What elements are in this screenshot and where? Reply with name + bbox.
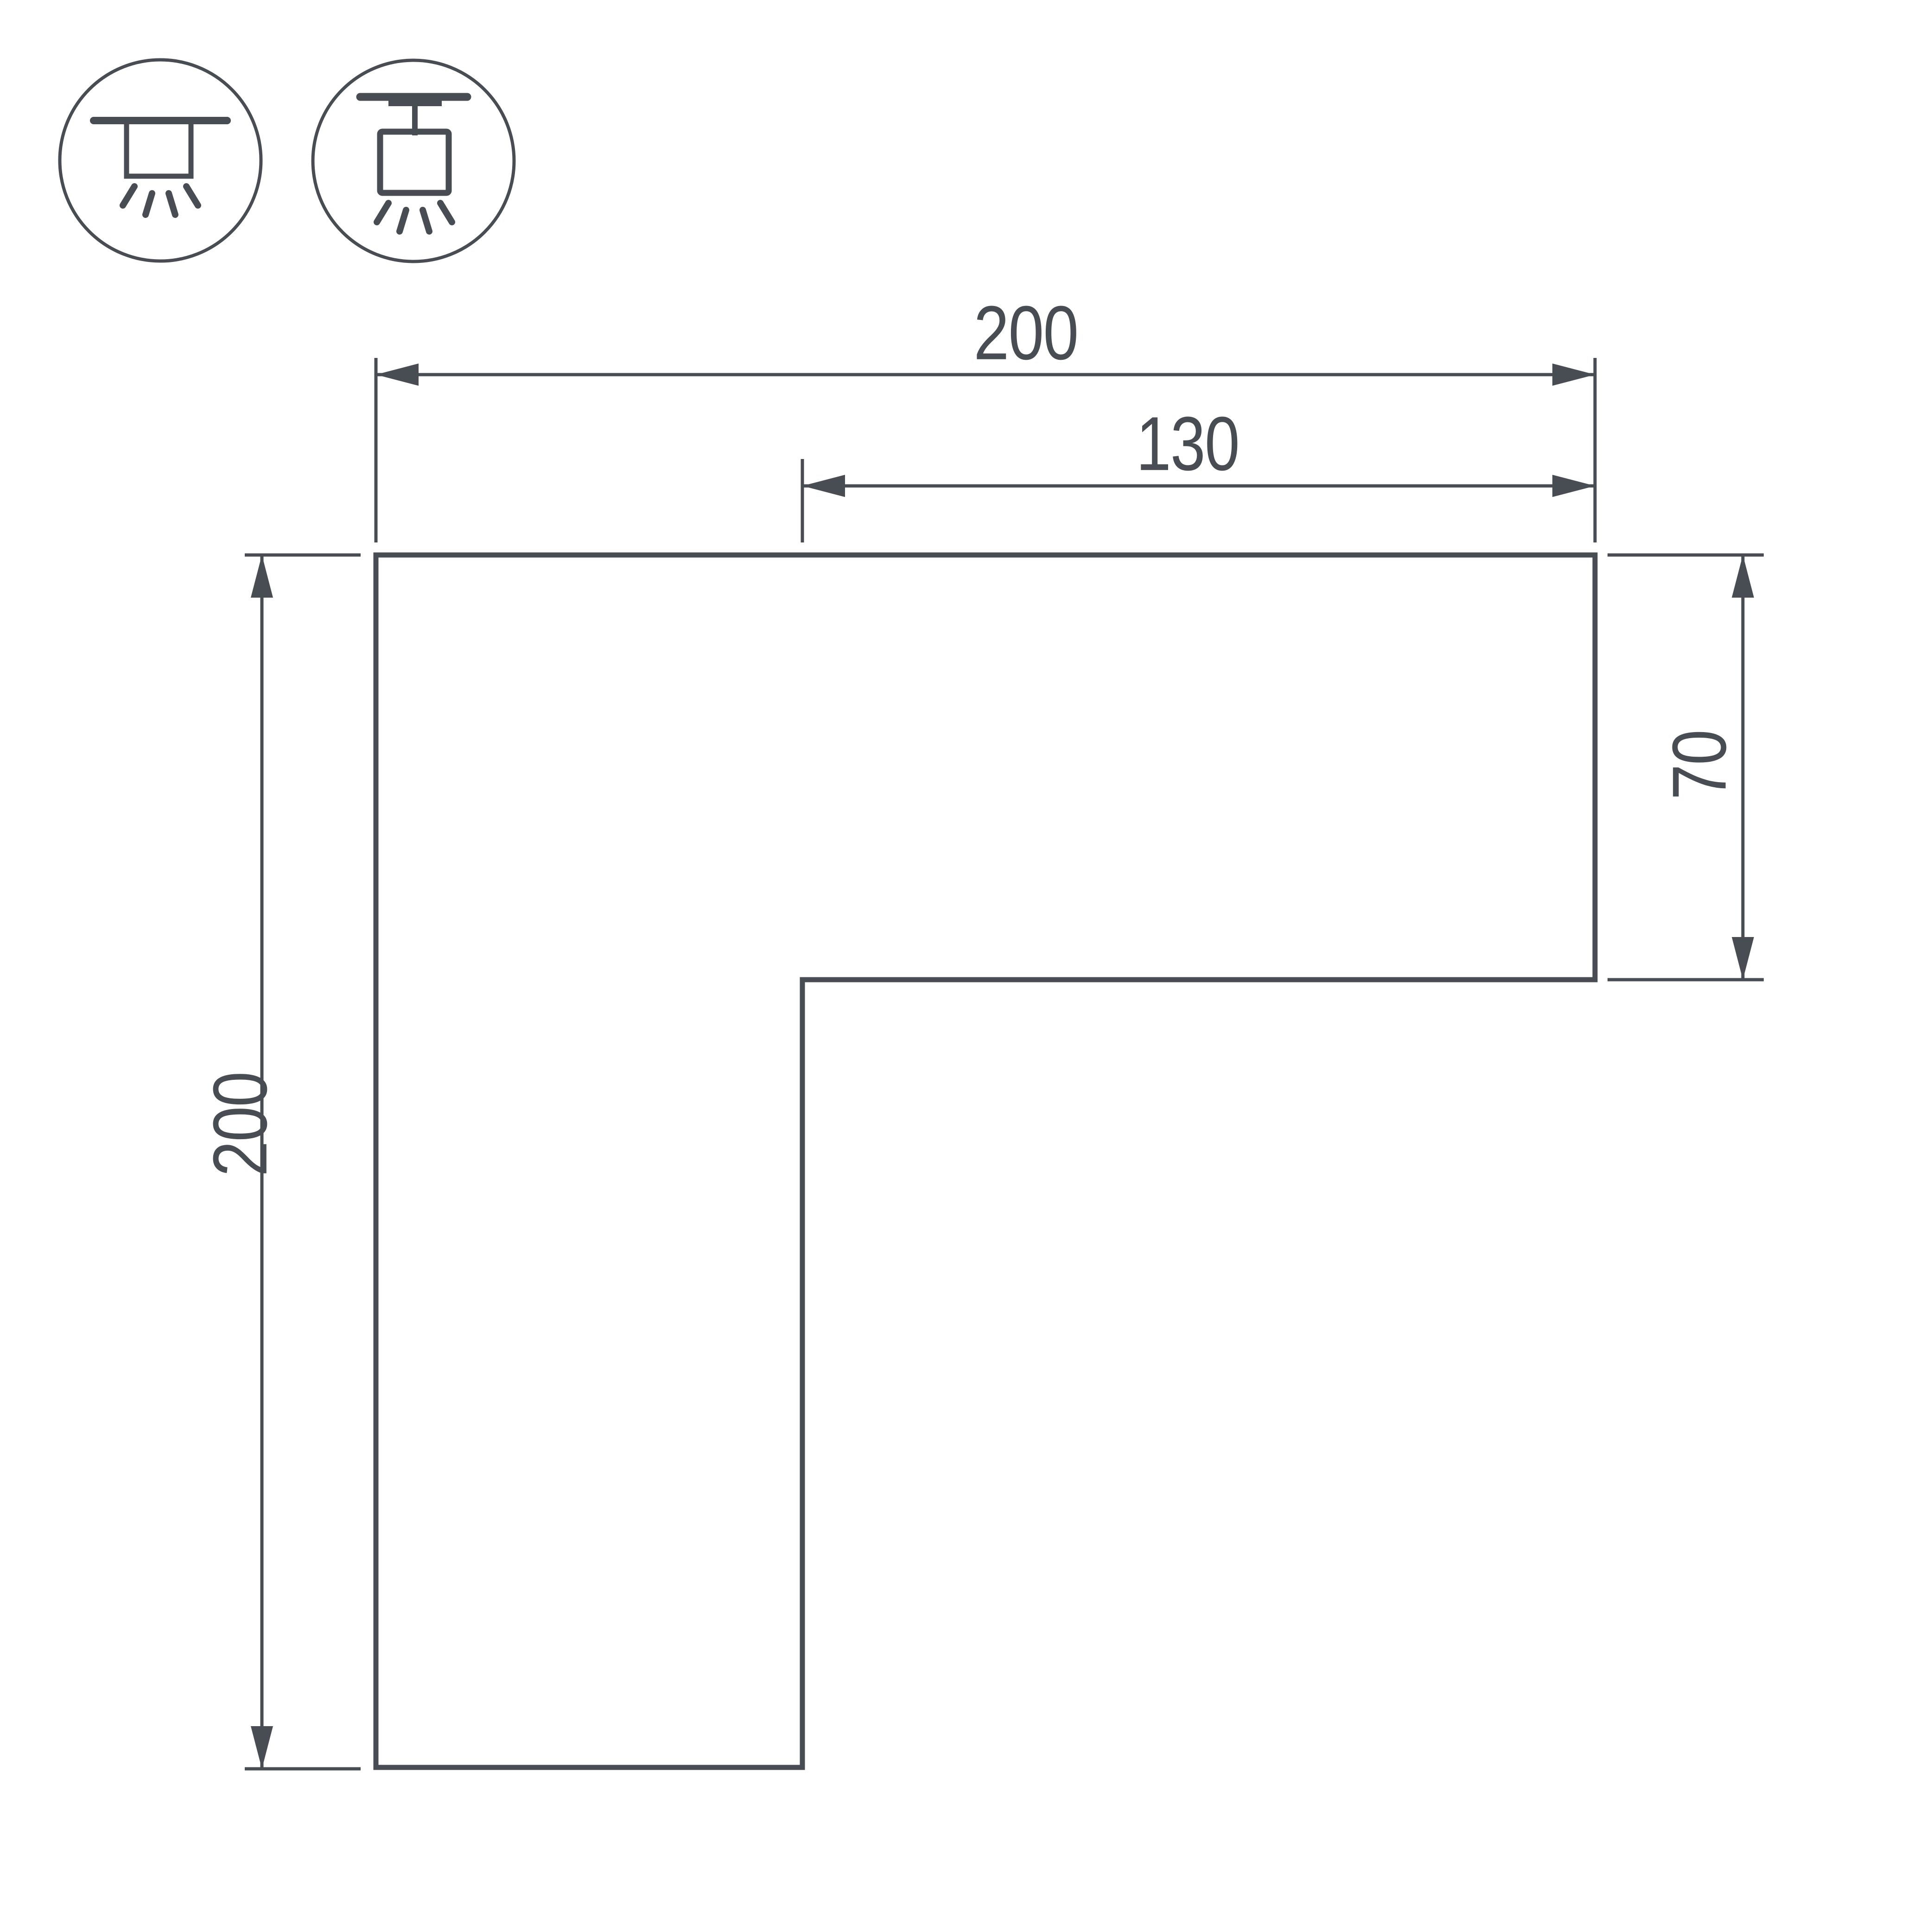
arrowhead-right — [1552, 363, 1595, 386]
arrowhead-right — [1552, 475, 1595, 497]
arrowhead-bottom — [251, 1726, 273, 1769]
icon-circle — [60, 60, 261, 261]
arrowhead-left — [376, 363, 419, 386]
l-profile-outline — [376, 555, 1595, 1767]
arrowhead-left — [802, 475, 845, 497]
extension-lines — [245, 358, 1764, 1769]
drawing-canvas: 200 130 200 70 — [0, 0, 1932, 1932]
arrowhead-top — [251, 555, 273, 598]
light-rays — [377, 203, 452, 231]
dimension-label-overall-width: 200 — [974, 290, 1078, 376]
arrowhead-bottom — [1732, 937, 1754, 980]
light-rays — [123, 186, 198, 215]
dimension-overall-height: 200 — [197, 555, 283, 1769]
luminaire-body — [380, 132, 449, 193]
dimension-label-overall-height: 200 — [197, 1072, 283, 1177]
arrowhead-top — [1732, 555, 1754, 598]
dimension-overall-width: 200 — [376, 290, 1595, 386]
dimension-label-inner-width: 130 — [1136, 401, 1239, 486]
dimension-label-right-height: 70 — [1657, 730, 1742, 800]
dimension-drawing: 200 130 200 70 — [0, 0, 1932, 1932]
dimension-right-height: 70 — [1657, 555, 1754, 980]
icon-circle — [313, 60, 514, 261]
luminaire-body — [127, 121, 191, 176]
track-mount-luminaire-icon — [313, 60, 514, 261]
dimension-inner-width: 130 — [802, 401, 1595, 497]
recessed-mount-luminaire-icon — [60, 60, 261, 261]
